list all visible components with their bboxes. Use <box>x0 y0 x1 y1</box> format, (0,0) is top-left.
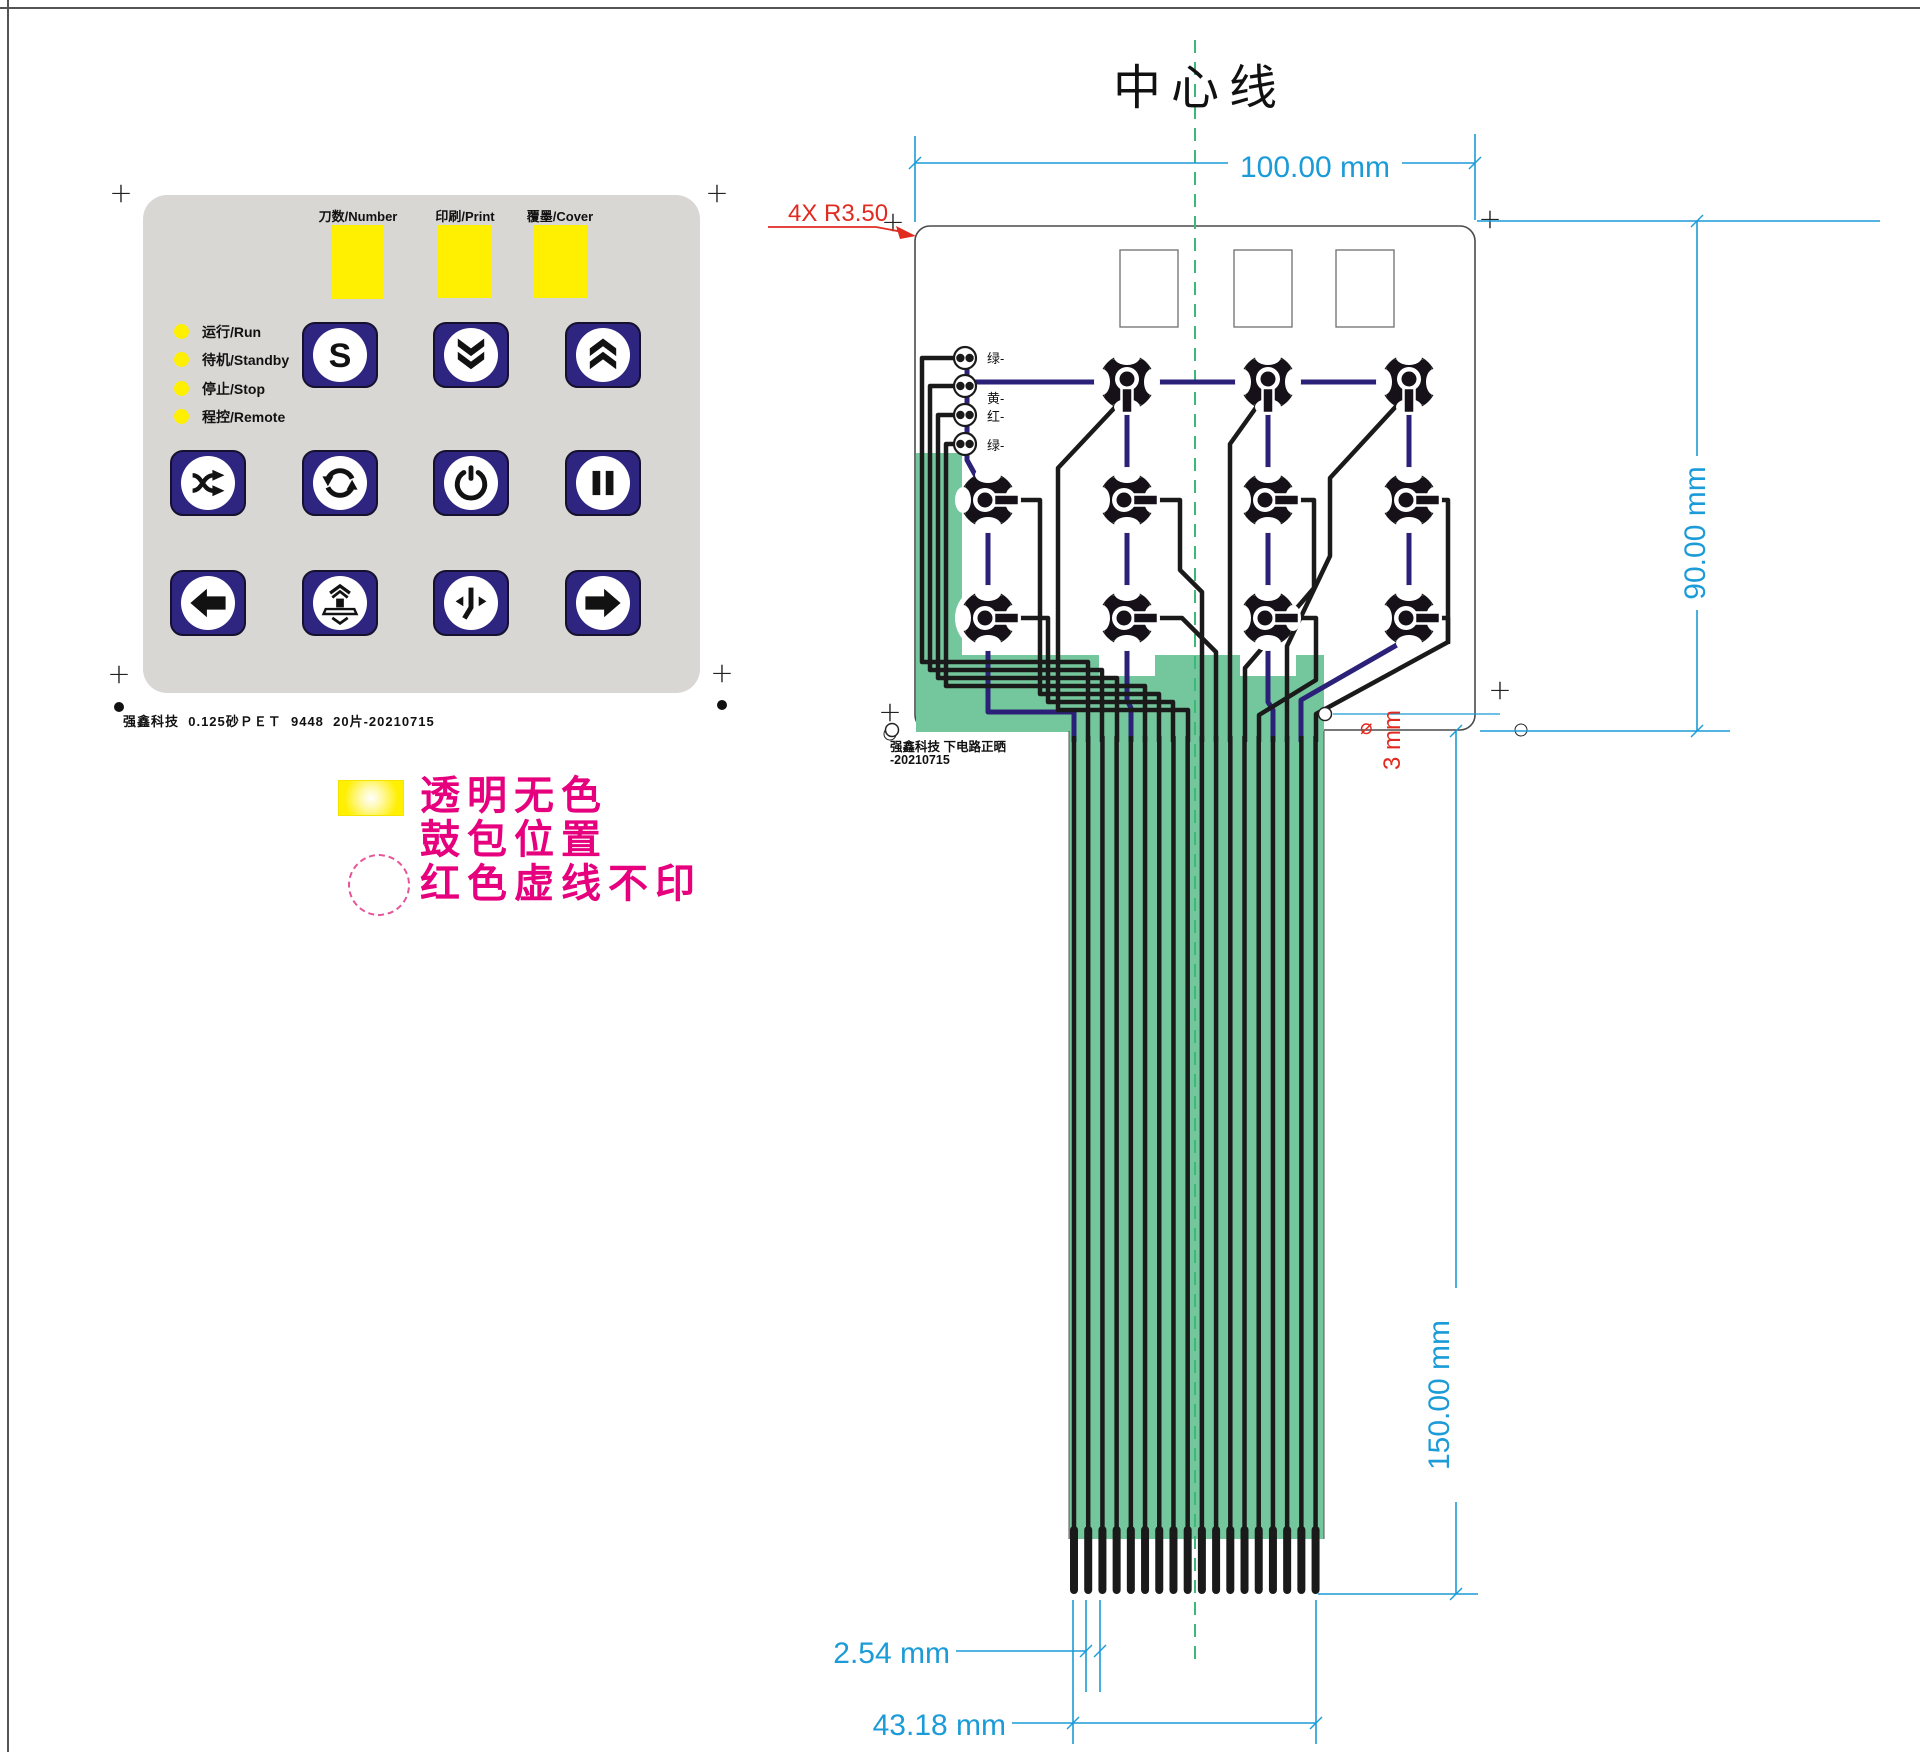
hole-diameter: 3 mm <box>1379 710 1406 770</box>
led-label-red: 红- <box>987 409 1004 424</box>
alignment-hole <box>1319 708 1332 721</box>
alignment-hole <box>886 724 899 737</box>
led-label-green2: 绿- <box>987 438 1004 453</box>
dim-tail-length: 150.00 mm <box>1423 1320 1456 1470</box>
led-label-green1: 绿- <box>987 351 1004 366</box>
circuit-caption: 强鑫科技 下电路正晒 -20210715 <box>890 741 1006 767</box>
dim-board-height: 90.00 mm <box>1679 466 1712 599</box>
circuit-caption-line2: -20210715 <box>890 754 1006 767</box>
dim-board-width: 100.00 mm <box>1240 151 1390 184</box>
drawing-canvas: 刀数/Number 印刷/Print 覆墨/Cover 运行/Run 待机/St… <box>0 0 1920 1752</box>
hole-diameter-symbol: ⌀ <box>1360 716 1373 739</box>
led-label-yellow: 黄- <box>987 391 1004 406</box>
centerline-title: 中心线 <box>1113 62 1287 115</box>
dim-tail-width: 43.18 mm <box>873 1709 1006 1742</box>
radius-callout: 4X R3.50 <box>788 200 888 227</box>
circuit-drawing: 绿- 黄- 红- 绿- 中心线 <box>0 0 1920 1752</box>
dim-finger-pitch: 2.54 mm <box>833 1637 950 1670</box>
